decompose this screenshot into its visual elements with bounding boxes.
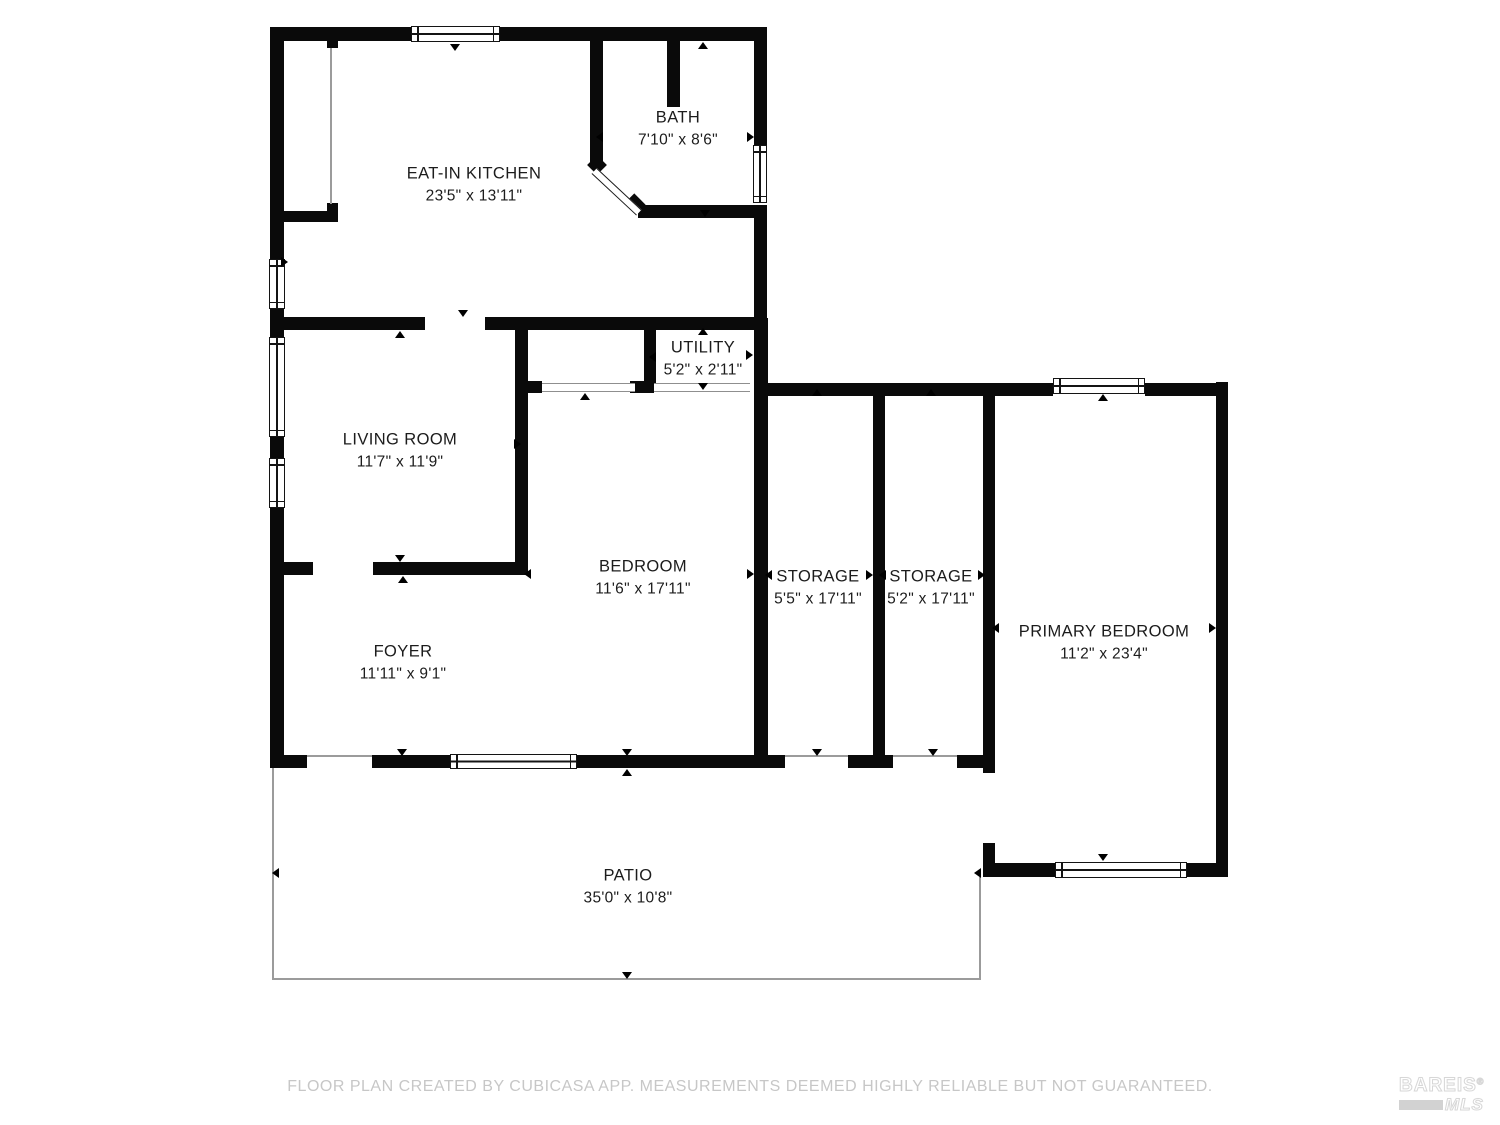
room-label: LIVING ROOM11'7" x 11'9" xyxy=(343,431,457,472)
measure-arrow xyxy=(812,749,822,756)
wall-opening xyxy=(542,383,635,392)
wall-segment xyxy=(848,755,893,768)
measure-arrow xyxy=(698,328,708,335)
wall-segment xyxy=(373,562,517,575)
room-dimensions: 11'2" x 23'4" xyxy=(1019,646,1189,664)
window xyxy=(269,458,285,508)
wall-segment xyxy=(270,507,284,755)
room-dimensions: 11'7" x 11'9" xyxy=(343,454,457,472)
room-label: BATH7'10" x 8'6" xyxy=(638,109,718,150)
room-label: STORAGE5'2" x 17'11" xyxy=(887,568,975,609)
logo-brand-name: BAREIS xyxy=(1399,1075,1477,1096)
measure-arrow xyxy=(1209,623,1216,633)
room-dimensions: 5'5" x 17'11" xyxy=(774,591,862,609)
room-name: BATH xyxy=(638,109,718,128)
measure-arrow xyxy=(747,132,754,142)
wall-segment xyxy=(284,211,338,222)
wall-segment xyxy=(638,205,754,218)
wall-segment xyxy=(270,562,313,575)
measure-arrow xyxy=(395,331,405,338)
wall-segment xyxy=(754,41,767,145)
room-name: UTILITY xyxy=(664,339,743,358)
room-name: BEDROOM xyxy=(595,558,691,577)
window xyxy=(269,337,285,437)
wall-segment xyxy=(327,41,338,48)
wall-segment xyxy=(590,41,603,168)
wall-segment xyxy=(1216,382,1228,877)
wall-segment xyxy=(1187,863,1228,877)
wall-segment xyxy=(957,755,993,768)
measure-arrow xyxy=(622,972,632,979)
floor-plan-canvas: FLOOR PLAN CREATED BY CUBICASA APP. MEAS… xyxy=(0,0,1500,1125)
room-name: FOYER xyxy=(360,643,447,662)
measure-arrow xyxy=(281,257,288,267)
room-dimensions: 11'11" x 9'1" xyxy=(360,666,447,684)
wall-segment xyxy=(270,317,425,330)
logo-sub-name: MLS xyxy=(1445,1096,1484,1113)
wall-segment xyxy=(270,435,284,458)
room-name: PATIO xyxy=(584,867,673,886)
room-name: EAT-IN KITCHEN xyxy=(407,165,542,184)
wall-segment xyxy=(768,383,1053,396)
window xyxy=(450,754,577,769)
room-label: EAT-IN KITCHEN23'5" x 13'11" xyxy=(407,165,542,206)
room-dimensions: 5'2" x 17'11" xyxy=(887,591,975,609)
room-name: LIVING ROOM xyxy=(343,431,457,450)
measure-arrow xyxy=(812,389,822,396)
measure-arrow xyxy=(458,310,468,317)
measure-arrow xyxy=(974,868,981,878)
bath-door-leaf xyxy=(592,168,642,215)
divider-line xyxy=(893,755,957,757)
wall-segment xyxy=(485,317,754,330)
wall-segment xyxy=(518,381,542,393)
logo-line-1: BAREIS® xyxy=(1399,1076,1495,1095)
measure-arrow xyxy=(398,576,408,583)
measure-arrow xyxy=(1098,394,1108,401)
room-name: STORAGE xyxy=(887,568,975,587)
wall-segment xyxy=(270,41,284,260)
wall-segment xyxy=(515,330,528,575)
measure-arrow xyxy=(700,210,710,217)
measure-arrow xyxy=(622,749,632,756)
divider-line xyxy=(307,755,372,757)
room-label: FOYER11'11" x 9'1" xyxy=(360,643,447,684)
room-label: PATIO35'0" x 10'8" xyxy=(584,867,673,908)
room-name: PRIMARY BEDROOM xyxy=(1019,623,1189,642)
wall-segment xyxy=(577,755,785,768)
logo-line-2: MLS xyxy=(1399,1096,1495,1113)
room-label: UTILITY5'2" x 2'11" xyxy=(664,339,743,380)
wall-segment xyxy=(667,41,680,107)
measure-arrow xyxy=(514,439,521,449)
window xyxy=(1055,862,1187,878)
wall-segment xyxy=(754,318,768,768)
measure-arrow xyxy=(926,389,936,396)
measure-arrow xyxy=(747,569,754,579)
room-dimensions: 5'2" x 2'11" xyxy=(664,362,743,380)
logo-bar xyxy=(1399,1100,1443,1110)
room-name: STORAGE xyxy=(774,568,862,587)
measure-arrow xyxy=(765,570,772,580)
wall-segment xyxy=(270,27,767,41)
measure-arrow xyxy=(992,623,999,633)
room-dimensions: 23'5" x 13'11" xyxy=(407,188,542,206)
measure-arrow xyxy=(879,570,886,580)
divider-line xyxy=(330,48,332,204)
measure-arrow xyxy=(746,350,753,360)
wall-segment xyxy=(270,755,307,768)
room-label: BEDROOM11'6" x 17'11" xyxy=(595,558,691,599)
measure-arrow xyxy=(272,868,279,878)
room-label: PRIMARY BEDROOM11'2" x 23'4" xyxy=(1019,623,1189,664)
room-dimensions: 11'6" x 17'11" xyxy=(595,581,691,599)
measure-arrow xyxy=(596,132,603,142)
measure-arrow xyxy=(866,570,873,580)
measure-arrow xyxy=(395,555,405,562)
measure-arrow xyxy=(928,749,938,756)
room-dimensions: 7'10" x 8'6" xyxy=(638,132,718,150)
window xyxy=(1053,378,1145,394)
measure-arrow xyxy=(397,749,407,756)
wall-segment xyxy=(983,390,995,773)
measure-arrow xyxy=(1098,854,1108,861)
room-label: STORAGE5'5" x 17'11" xyxy=(774,568,862,609)
measure-arrow xyxy=(698,383,708,390)
measure-arrow xyxy=(698,42,708,49)
footer-disclaimer: FLOOR PLAN CREATED BY CUBICASA APP. MEAS… xyxy=(0,1078,1500,1096)
bareis-mls-logo: BAREIS® MLS xyxy=(1399,1076,1495,1113)
measure-arrow xyxy=(622,769,632,776)
measure-arrow xyxy=(524,569,531,579)
wall-segment xyxy=(372,755,450,768)
registered-mark-icon: ® xyxy=(1477,1077,1484,1087)
window xyxy=(753,145,767,203)
measure-arrow xyxy=(450,44,460,51)
wall-segment xyxy=(983,863,1055,877)
measure-arrow xyxy=(649,352,656,362)
measure-arrow xyxy=(978,570,985,580)
divider-line xyxy=(979,877,981,980)
wall-segment xyxy=(754,205,767,318)
measure-arrow xyxy=(580,393,590,400)
room-dimensions: 35'0" x 10'8" xyxy=(584,890,673,908)
window xyxy=(411,26,500,42)
